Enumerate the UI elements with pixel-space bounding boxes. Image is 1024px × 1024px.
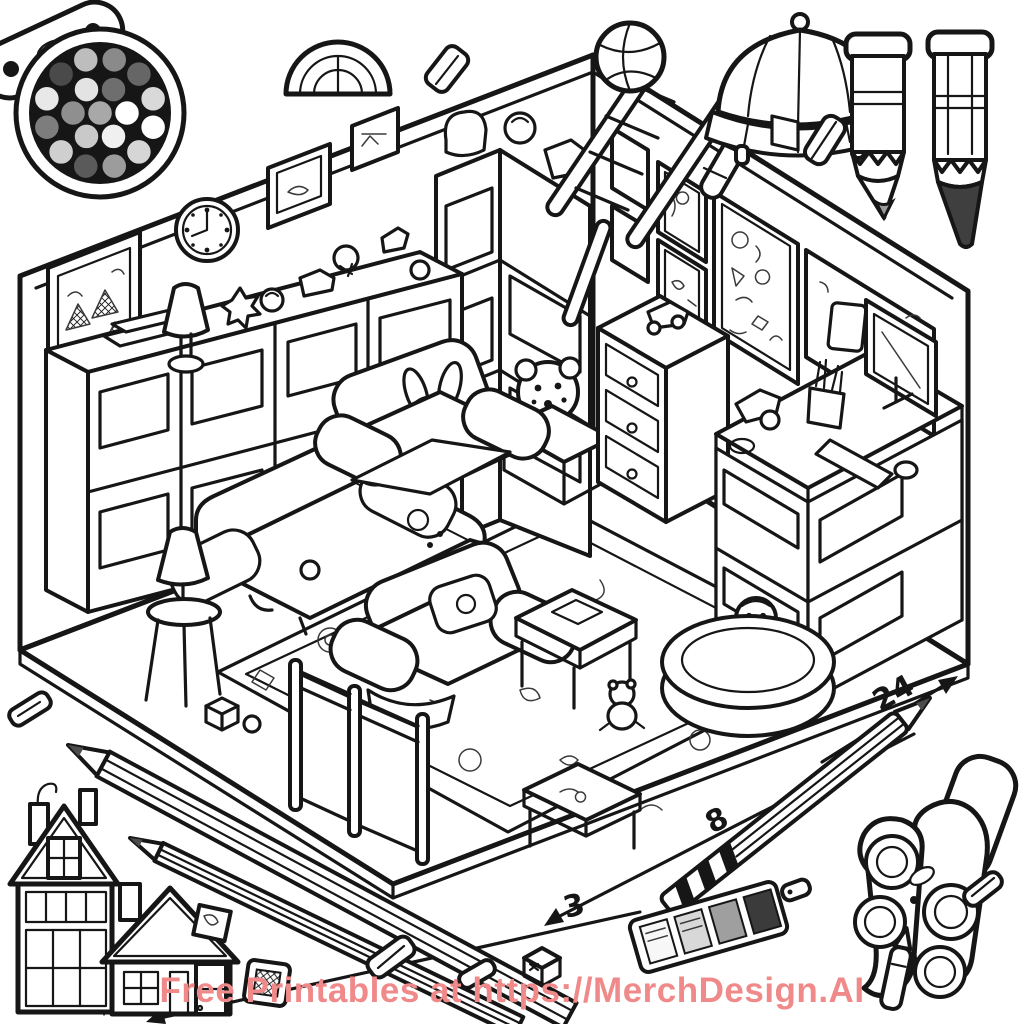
- crayon-right-tip: [938, 182, 982, 247]
- paint-well: [34, 115, 59, 140]
- tent-door: [772, 116, 798, 150]
- eraser-left-edge: [7, 690, 54, 729]
- paint-well: [126, 62, 151, 87]
- paint-well: [126, 139, 151, 164]
- paint-well: [102, 154, 127, 179]
- watermark-text: Free Printables at https://MerchDesign.A…: [159, 971, 864, 1010]
- wall-clock: [176, 199, 238, 261]
- whistle-charm: [780, 878, 812, 903]
- coloring-page: 24 8 3: [0, 0, 1024, 1024]
- crayon-left: [846, 34, 910, 218]
- eraser-topleft: [423, 43, 472, 95]
- rainbow-arch: [286, 42, 390, 94]
- table-lamp: [164, 284, 208, 372]
- mouse: [895, 462, 917, 478]
- paint-well: [74, 124, 99, 149]
- playroom-illustration: 24 8 3: [0, 0, 1024, 1024]
- paint-well: [49, 62, 74, 87]
- paint-well: [102, 47, 127, 72]
- paint-swatch-strip: [628, 880, 789, 974]
- tablet: [828, 302, 867, 351]
- dresser: [598, 296, 728, 522]
- basketball: [596, 23, 664, 91]
- paint-well: [73, 154, 98, 179]
- crayon-right: [928, 32, 992, 247]
- toy-house-tall: [10, 784, 118, 1012]
- paint-well: [141, 115, 166, 140]
- dim-label-8: 8: [700, 800, 734, 841]
- toy-ball: [301, 561, 319, 579]
- paint-palette: [0, 0, 184, 197]
- paint-well: [34, 86, 59, 111]
- paint-well: [73, 47, 98, 72]
- dim-label-3: 3: [560, 887, 588, 926]
- paint-well: [141, 86, 166, 111]
- paint-well: [115, 101, 140, 126]
- crayon-left-tip: [876, 202, 892, 218]
- paint-well: [61, 101, 86, 126]
- paint-well: [101, 77, 126, 102]
- paint-well: [101, 124, 126, 149]
- paint-well: [74, 77, 99, 102]
- paint-well: [49, 139, 74, 164]
- paint-well: [88, 101, 113, 126]
